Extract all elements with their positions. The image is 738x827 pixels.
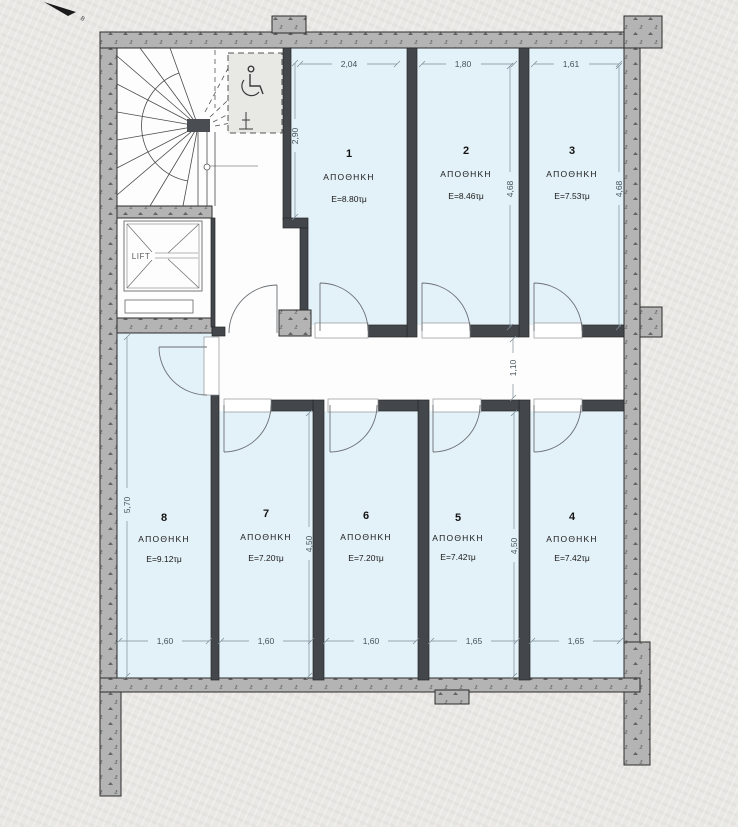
door-threshold-room6 bbox=[328, 399, 378, 412]
wall-room3-south bbox=[582, 325, 624, 337]
floor-plan-drawing: Β bbox=[0, 0, 738, 827]
lift-sill bbox=[125, 300, 193, 313]
svg-text:2: 2 bbox=[463, 145, 469, 157]
svg-text:2,04: 2,04 bbox=[341, 59, 358, 69]
wall-room8-east bbox=[211, 395, 219, 680]
svg-text:4,68: 4,68 bbox=[614, 180, 624, 197]
svg-text:4: 4 bbox=[569, 511, 576, 523]
svg-text:1,80: 1,80 bbox=[455, 59, 472, 69]
svg-text:2,90: 2,90 bbox=[290, 127, 300, 144]
wall-bottom-notch bbox=[435, 690, 469, 704]
wall-room6-room5 bbox=[418, 400, 429, 680]
svg-text:E=7.53τμ: E=7.53τμ bbox=[554, 191, 590, 201]
wall-room6-north bbox=[378, 400, 418, 411]
svg-text:1,60: 1,60 bbox=[157, 636, 174, 646]
wall-room4-north bbox=[582, 400, 624, 411]
wall-stair-room1-jog bbox=[283, 218, 308, 228]
lift-label: LIFT bbox=[132, 252, 150, 261]
door-threshold-room5 bbox=[433, 399, 481, 412]
svg-text:6: 6 bbox=[363, 510, 369, 522]
svg-text:E=9.12τμ: E=9.12τμ bbox=[146, 554, 182, 564]
wall-room7-north bbox=[271, 400, 313, 411]
svg-text:ΑΠΟΘΗΚΗ: ΑΠΟΘΗΚΗ bbox=[340, 532, 391, 542]
svg-text:5: 5 bbox=[455, 512, 461, 524]
lift-wall-cap bbox=[212, 327, 225, 336]
svg-text:8: 8 bbox=[161, 512, 167, 524]
room-2-floor bbox=[417, 48, 519, 325]
stair-newel-post bbox=[187, 119, 210, 132]
svg-text:4,50: 4,50 bbox=[509, 537, 519, 554]
wall-right bbox=[624, 48, 640, 642]
svg-text:1,65: 1,65 bbox=[568, 636, 585, 646]
wall-right-pier bbox=[640, 307, 662, 337]
lift-east-wall bbox=[211, 218, 215, 327]
corridor-entry-pier bbox=[279, 310, 311, 336]
wall-room2-south bbox=[470, 325, 519, 337]
svg-text:E=8.46τμ: E=8.46τμ bbox=[448, 191, 484, 201]
door-threshold-room3 bbox=[534, 323, 582, 338]
svg-text:E=8.80τμ: E=8.80τμ bbox=[331, 194, 367, 204]
svg-text:1,10: 1,10 bbox=[508, 359, 518, 376]
wheelchair-platform bbox=[228, 53, 282, 133]
svg-text:1,65: 1,65 bbox=[466, 636, 483, 646]
svg-text:ΑΠΟΘΗΚΗ: ΑΠΟΘΗΚΗ bbox=[323, 172, 374, 182]
svg-text:4,68: 4,68 bbox=[505, 180, 515, 197]
north-label: Β bbox=[79, 16, 86, 23]
door-threshold-room8 bbox=[204, 337, 219, 395]
floor-plan-canvas: Β bbox=[0, 0, 738, 827]
svg-text:4,50: 4,50 bbox=[304, 535, 314, 552]
svg-text:E=7.42τμ: E=7.42τμ bbox=[554, 553, 590, 563]
stair-handrail-end bbox=[204, 164, 210, 170]
wall-room7-room6 bbox=[313, 400, 324, 680]
wall-room1-south bbox=[368, 325, 407, 337]
svg-text:ΑΠΟΘΗΚΗ: ΑΠΟΘΗΚΗ bbox=[432, 533, 483, 543]
svg-text:5,70: 5,70 bbox=[122, 496, 132, 513]
wall-top-right-column bbox=[624, 16, 662, 48]
door-threshold-room7 bbox=[224, 399, 271, 412]
wall-right-wing bbox=[624, 642, 650, 765]
svg-text:ΑΠΟΘΗΚΗ: ΑΠΟΘΗΚΗ bbox=[138, 534, 189, 544]
svg-text:3: 3 bbox=[569, 145, 575, 157]
wall-top-column-stub bbox=[272, 16, 306, 33]
lift-north-wall bbox=[117, 206, 212, 218]
door-threshold-room4 bbox=[534, 399, 582, 412]
door-threshold-room1 bbox=[315, 323, 368, 338]
wall-stair-room1-lower bbox=[300, 228, 308, 310]
room-1-floor-lower bbox=[308, 218, 407, 325]
svg-text:ΑΠΟΘΗΚΗ: ΑΠΟΘΗΚΗ bbox=[240, 532, 291, 542]
svg-text:ΑΠΟΘΗΚΗ: ΑΠΟΘΗΚΗ bbox=[440, 169, 491, 179]
svg-text:1,60: 1,60 bbox=[363, 636, 380, 646]
svg-text:ΑΠΟΘΗΚΗ: ΑΠΟΘΗΚΗ bbox=[546, 169, 597, 179]
svg-text:1,60: 1,60 bbox=[258, 636, 275, 646]
north-arrow: Β bbox=[44, 2, 86, 23]
door-threshold-room2 bbox=[422, 323, 470, 338]
wall-room5-room4 bbox=[519, 400, 530, 680]
svg-text:ΑΠΟΘΗΚΗ: ΑΠΟΘΗΚΗ bbox=[546, 534, 597, 544]
platform-outline bbox=[228, 53, 282, 133]
north-arrow-head bbox=[44, 2, 76, 16]
svg-text:E=7.20τμ: E=7.20τμ bbox=[248, 553, 284, 563]
wall-top bbox=[100, 32, 642, 48]
svg-text:1,61: 1,61 bbox=[563, 59, 580, 69]
svg-text:E=7.20τμ: E=7.20τμ bbox=[348, 553, 384, 563]
lift-south-wall bbox=[117, 318, 212, 333]
room-1-floor bbox=[291, 48, 407, 218]
wall-left bbox=[100, 32, 117, 678]
wall-left-wing bbox=[100, 678, 121, 796]
wall-room2-room3 bbox=[519, 48, 529, 337]
wall-room1-room2 bbox=[407, 48, 417, 337]
wall-room5-north bbox=[481, 400, 519, 411]
wall-bottom bbox=[100, 678, 640, 692]
svg-text:7: 7 bbox=[263, 508, 269, 520]
svg-text:E=7.42τμ: E=7.42τμ bbox=[440, 552, 476, 562]
svg-text:1: 1 bbox=[346, 148, 352, 160]
